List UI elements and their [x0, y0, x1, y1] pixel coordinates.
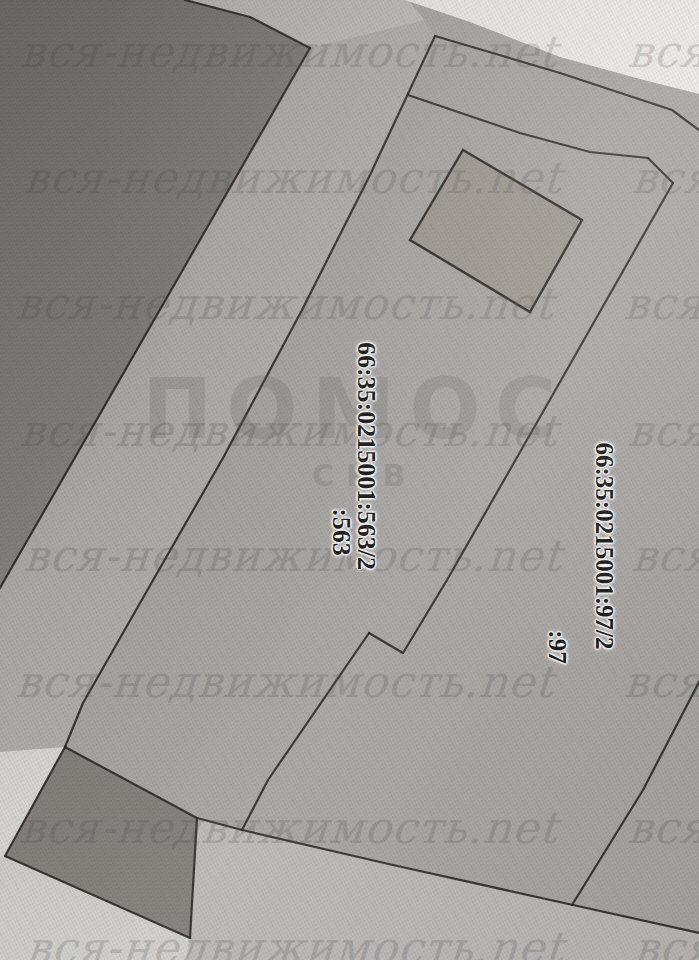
cadastral-label-97-short: :97: [543, 630, 571, 663]
cadastral-label-563-short: :563: [326, 508, 356, 556]
cadastral-plan-scan: ПОМОС СКВ вся-недвижимость.netвся-недвиж…: [0, 0, 699, 960]
cadastral-label-97-part: 66:35:0215001:97/2: [590, 443, 618, 650]
